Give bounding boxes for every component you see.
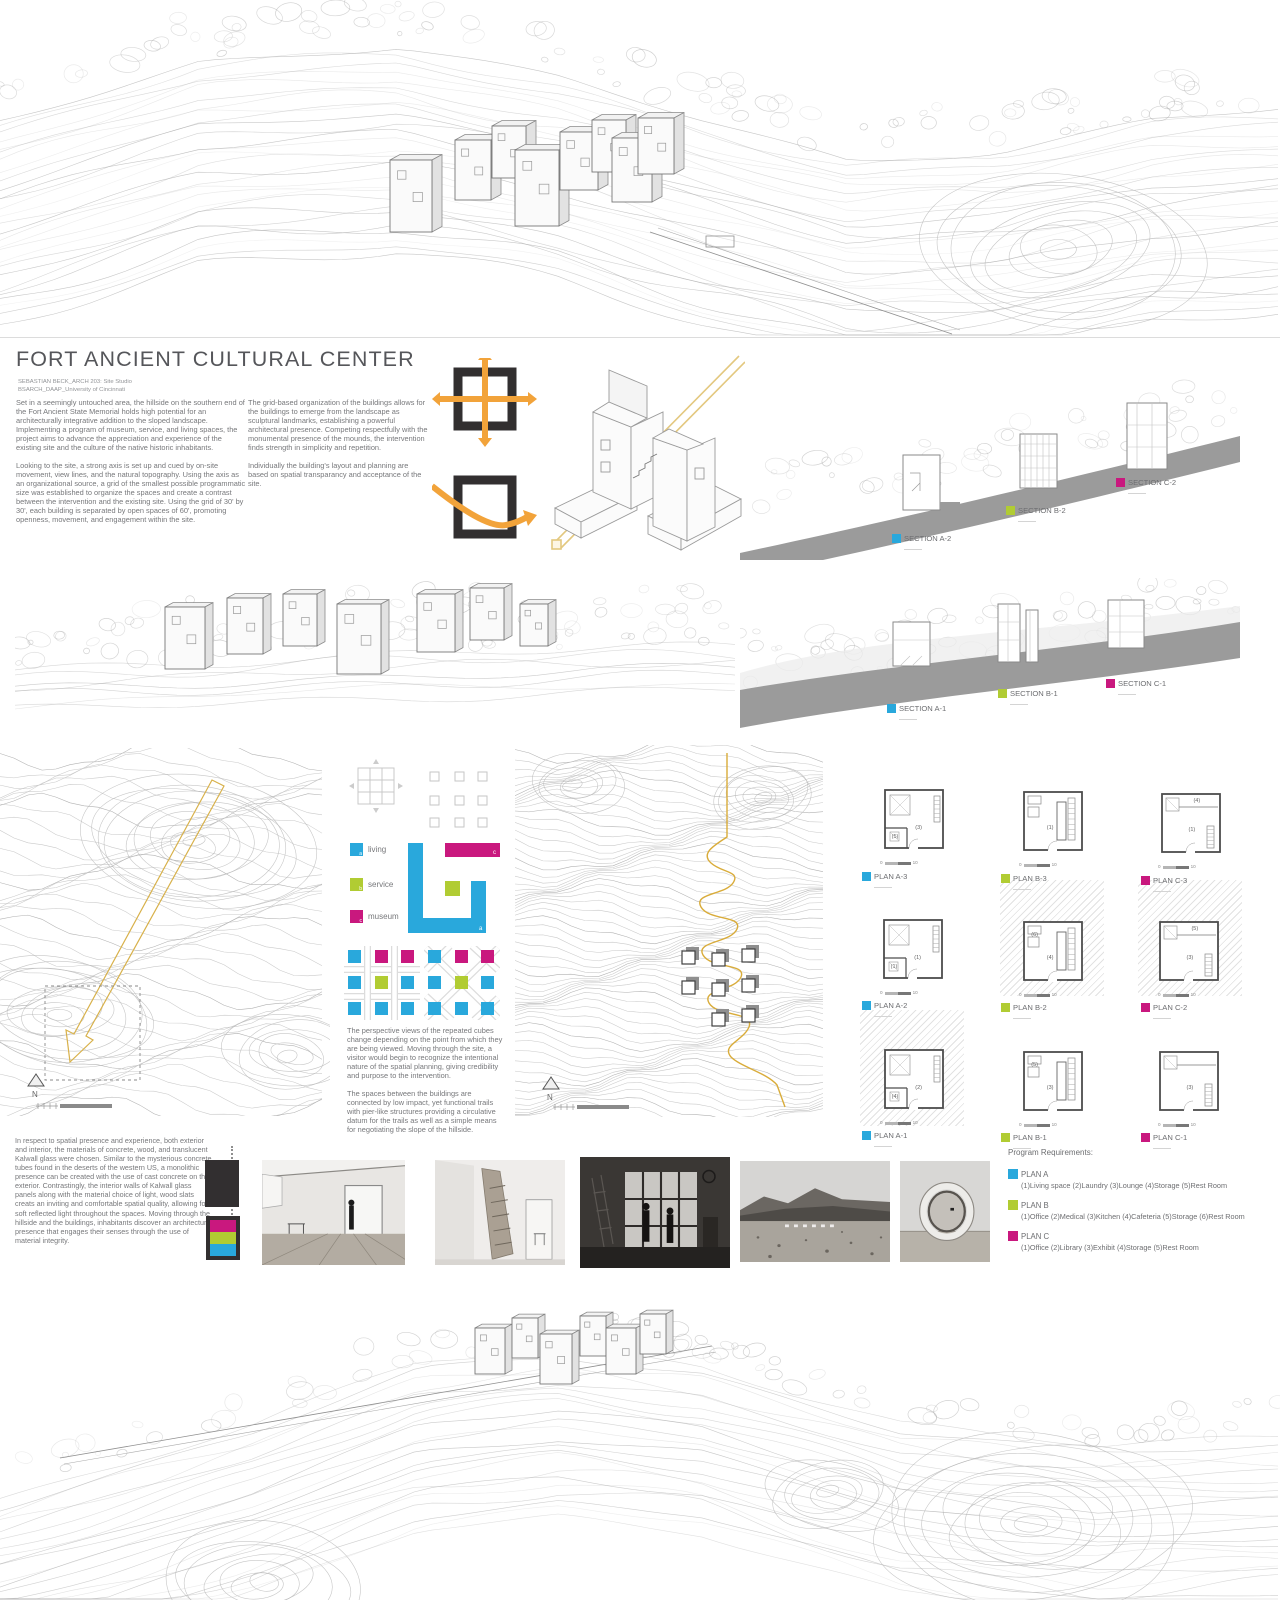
site-contour-map: N [0,748,330,1116]
plan-label: PLAN B-2 [1001,1003,1047,1012]
swatch-bar-green [210,1232,236,1244]
section-drawing-upper [740,378,1240,560]
axis-concept-icons [432,358,537,558]
kalwall-material-swatch [206,1216,240,1260]
section-label: SECTION B-1 [998,689,1058,698]
plan-label: PLAN A-1 [862,1131,907,1140]
plan-color-swatch [1001,1133,1010,1142]
legend-item-service: b service [350,878,393,891]
section-color-swatch [1106,679,1115,688]
author-block: SEBASTIAN BECK_ARCH 203: Site Studio BSA… [18,378,132,395]
divider [0,337,1280,338]
plan-color-swatch [1141,1003,1150,1012]
plan-scale: 010 [1158,1122,1196,1127]
plan-label: PLAN C-3 [1141,876,1187,885]
floor-plan-a2: (1) (1) [882,918,944,982]
section-label: SECTION C-2 [1116,478,1176,487]
diagram-text: The perspective views of the repeated cu… [347,1026,507,1143]
sections-row-2: SECTION A-2 SECTION B-2 SECTION C-2 [740,378,1240,560]
floor-plan-c2: (3) (5) [1158,920,1220,984]
plan-scale: 010 [1158,864,1196,869]
axonometric-drawing [535,350,745,565]
plan-c-items: (1)Office (2)Library (3)Exhibit (4)Stora… [1021,1243,1248,1252]
photo-stairwell [435,1160,565,1265]
floor-plan-b2: (4) (6) [1022,920,1084,984]
grid-cell-icon [342,758,406,818]
plan-scale: 010 [1019,1122,1057,1127]
plan-scale: 010 [880,860,918,865]
section-drawing-lower [740,578,1240,733]
plan-color-swatch [862,872,871,881]
floor-plan-b1: (3) (5) [1022,1050,1084,1114]
orthogonal-paths-diagram [344,946,420,1020]
program-massing-diagram: c a [408,843,500,933]
legend-swatch-museum: c [350,910,363,923]
section-color-swatch [1006,506,1015,515]
plan-scale: 010 [880,990,918,995]
scale-bar [36,1103,112,1109]
photo-interior-window [262,1160,405,1265]
north-arrow-icon: N [28,1074,44,1099]
hillside-perspective-top [0,0,1280,336]
plan-color-swatch [1001,1003,1010,1012]
axon-buildings [555,370,741,550]
plan-b-swatch [1008,1200,1018,1210]
legend-swatch-service: b [350,878,363,891]
plan-label: PLAN A-3 [862,872,907,881]
section-color-swatch [887,704,896,713]
program-plan-b: PLAN B (1)Office (2)Medical (3)Kitchen (… [1008,1200,1248,1221]
site-axis-arrow [66,780,224,1062]
site-plan-buildings [682,945,759,1026]
plan-label: PLAN A-2 [862,1001,907,1010]
hillside-perspective-bottom [0,1288,1280,1600]
presentation-board: FORT ANCIENT CULTURAL CENTER SEBASTIAN B… [0,0,1280,1600]
section-label: SECTION C-1 [1106,679,1166,688]
section-label: SECTION B-2 [1006,506,1066,515]
plan-a-items: (1)Living space (2)Laundry (3)Lounge (4)… [1021,1181,1248,1190]
plan-color-swatch [862,1001,871,1010]
plan-label: PLAN B-3 [1001,874,1047,883]
page-title: FORT ANCIENT CULTURAL CENTER [16,347,415,372]
author-line-2: BSARCH_DAAP_University of Cincinnati [18,386,132,394]
author-line-1: SEBASTIAN BECK_ARCH 203: Site Studio [18,378,132,386]
intro-paragraph: Set in a seemingly untouched area, the h… [16,398,246,452]
svg-text:N: N [32,1090,38,1099]
photo-concrete-tube [900,1161,990,1262]
intro-paragraph: Looking to the site, a strong axis is se… [16,461,246,524]
plan-scale: 010 [880,1120,918,1125]
plan-color-swatch [1001,874,1010,883]
program-plan-c: PLAN C (1)Office (2)Library (3)Exhibit (… [1008,1231,1248,1252]
site-plan-contours: N [515,745,823,1117]
section-color-swatch [998,689,1007,698]
floor-plan-c1: (3) [1158,1050,1220,1114]
photo-dark-interior [580,1157,730,1268]
diagonal-paths-diagram [424,946,500,1020]
photo-desert-landscape [740,1161,890,1262]
intro-paragraph: Individually the building's layout and p… [248,461,428,488]
floor-plan-a1: (2) (4) [883,1048,945,1112]
plan-color-swatch [862,1131,871,1140]
plan-scale: 010 [1158,992,1196,997]
svg-text:N: N [547,1093,553,1102]
intro-paragraph: The grid-based organization of the build… [248,398,428,452]
plan-label: PLAN C-2 [1141,1003,1187,1012]
legend-swatch-living: a [350,843,363,856]
intro-column-1: Set in a seemingly untouched area, the h… [16,398,246,533]
section-label: SECTION A-2 [892,534,951,543]
concrete-material-swatch [205,1160,239,1207]
plan-scale: 010 [1019,862,1057,867]
floor-plans-grid: (3) (5) 010 PLAN A-3 (1) 010 PLAN B-3 (1… [840,752,1240,1148]
program-plan-a: PLAN A (1)Living space (2)Laundry (3)Lou… [1008,1169,1248,1190]
plan-color-swatch [1141,1133,1150,1142]
section-label: SECTION A-1 [887,704,946,713]
legend-item-museum: c museum [350,910,399,923]
section-color-swatch [892,534,901,543]
swatch-bar-blue [210,1244,236,1256]
diagram-paragraph: The perspective views of the repeated cu… [347,1026,507,1080]
plan-label: PLAN C-1 [1141,1133,1187,1142]
diagram-paragraph: The spaces between the buildings are con… [347,1089,507,1134]
cube-grid-diagram [418,762,503,834]
svg-text:c: c [493,850,496,856]
plan-b-items: (1)Office (2)Medical (3)Kitchen (4)Cafet… [1021,1212,1248,1221]
sections-row-1: SECTION A-1 SECTION B-1 SECTION C-1 [740,578,1240,733]
elevation-sketch [15,552,740,734]
plan-color-swatch [1141,876,1150,885]
floor-plan-c3: (1) (4) [1160,792,1222,856]
program-requirements: Program Requirements: PLAN A (1)Living s… [1008,1148,1248,1262]
plan-scale: 010 [1019,992,1057,997]
floor-plan-b3: (1) [1022,790,1084,854]
section-color-swatch [1116,478,1125,487]
intro-column-2: The grid-based organization of the build… [248,398,428,497]
legend-item-living: a living [350,843,386,856]
swatch-bar-magenta [210,1220,236,1232]
materials-text: In respect to spatial presence and exper… [15,1136,213,1245]
program-heading: Program Requirements: [1008,1148,1248,1157]
floor-plan-a3: (3) (5) [883,788,945,852]
plan-c-swatch [1008,1231,1018,1241]
plan-label: PLAN B-1 [1001,1133,1047,1142]
plan-a-swatch [1008,1169,1018,1179]
scale-bar [553,1104,629,1110]
